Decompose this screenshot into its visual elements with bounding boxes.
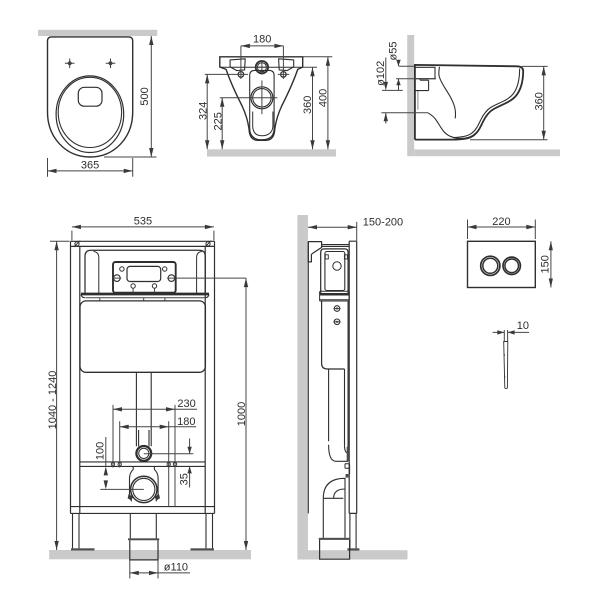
svg-text:150-200: 150-200 <box>363 216 403 228</box>
svg-text:365: 365 <box>81 160 99 172</box>
svg-text:180: 180 <box>177 416 195 428</box>
svg-text:360: 360 <box>302 96 314 114</box>
svg-text:ø102: ø102 <box>375 61 387 86</box>
svg-text:1040 - 1240: 1040 - 1240 <box>47 371 59 430</box>
svg-text:220: 220 <box>492 216 510 228</box>
svg-text:500: 500 <box>139 87 151 105</box>
svg-text:ø110: ø110 <box>164 561 188 573</box>
svg-text:100: 100 <box>95 442 107 460</box>
svg-text:35: 35 <box>179 473 191 485</box>
svg-text:ø55: ø55 <box>388 42 400 61</box>
svg-text:10: 10 <box>517 320 529 332</box>
svg-text:360: 360 <box>533 92 545 110</box>
svg-text:400: 400 <box>318 89 330 107</box>
svg-text:535: 535 <box>134 216 152 228</box>
svg-text:225: 225 <box>212 112 224 130</box>
svg-text:150: 150 <box>540 255 552 273</box>
svg-text:230: 230 <box>177 398 195 410</box>
svg-text:180: 180 <box>253 33 271 45</box>
svg-text:1000: 1000 <box>236 402 248 426</box>
svg-text:324: 324 <box>197 102 209 120</box>
